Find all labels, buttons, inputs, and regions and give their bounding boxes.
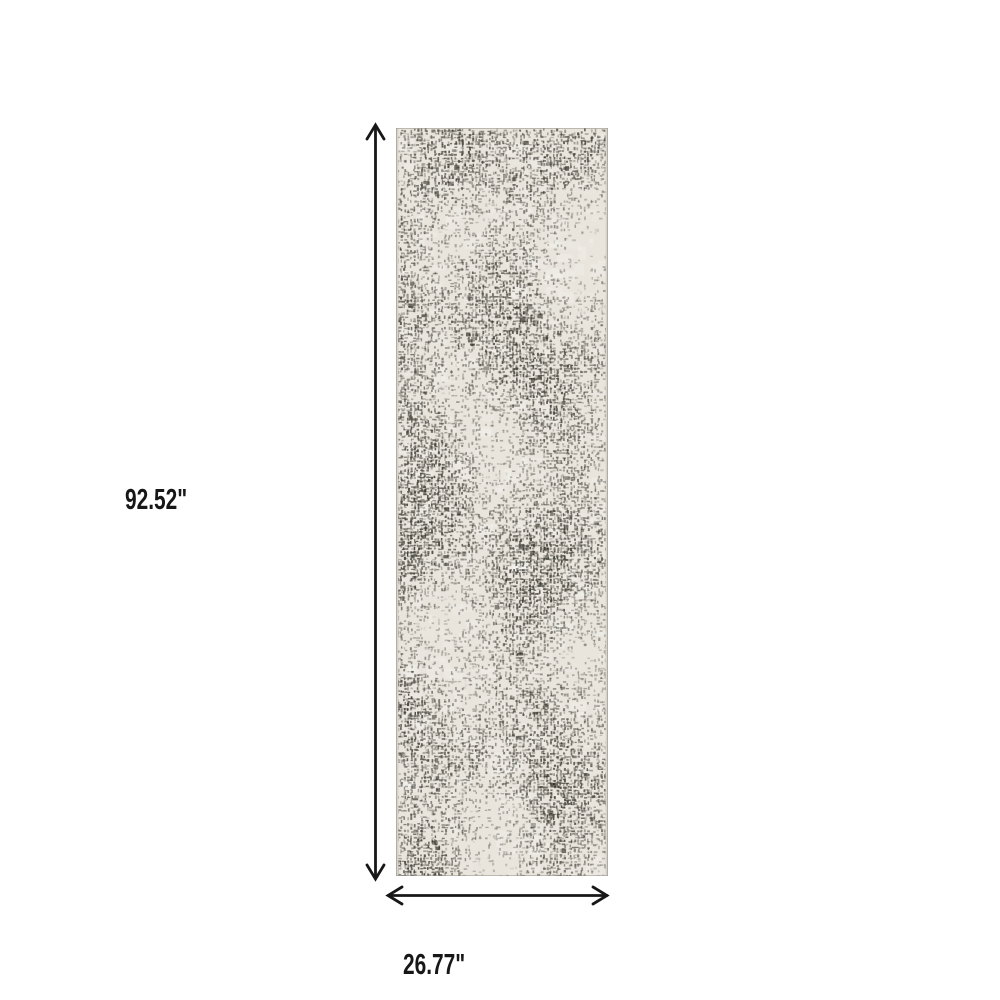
height-dimension-arrow bbox=[359, 118, 393, 886]
width-dimension-label: 26.77" bbox=[403, 951, 465, 980]
height-dimension-label: 92.52" bbox=[125, 486, 187, 515]
product-image: 92.52" 26.77" bbox=[0, 0, 1000, 1000]
rug-photo bbox=[396, 128, 608, 876]
rug-texture bbox=[396, 128, 608, 876]
width-dimension-arrow bbox=[381, 881, 615, 911]
